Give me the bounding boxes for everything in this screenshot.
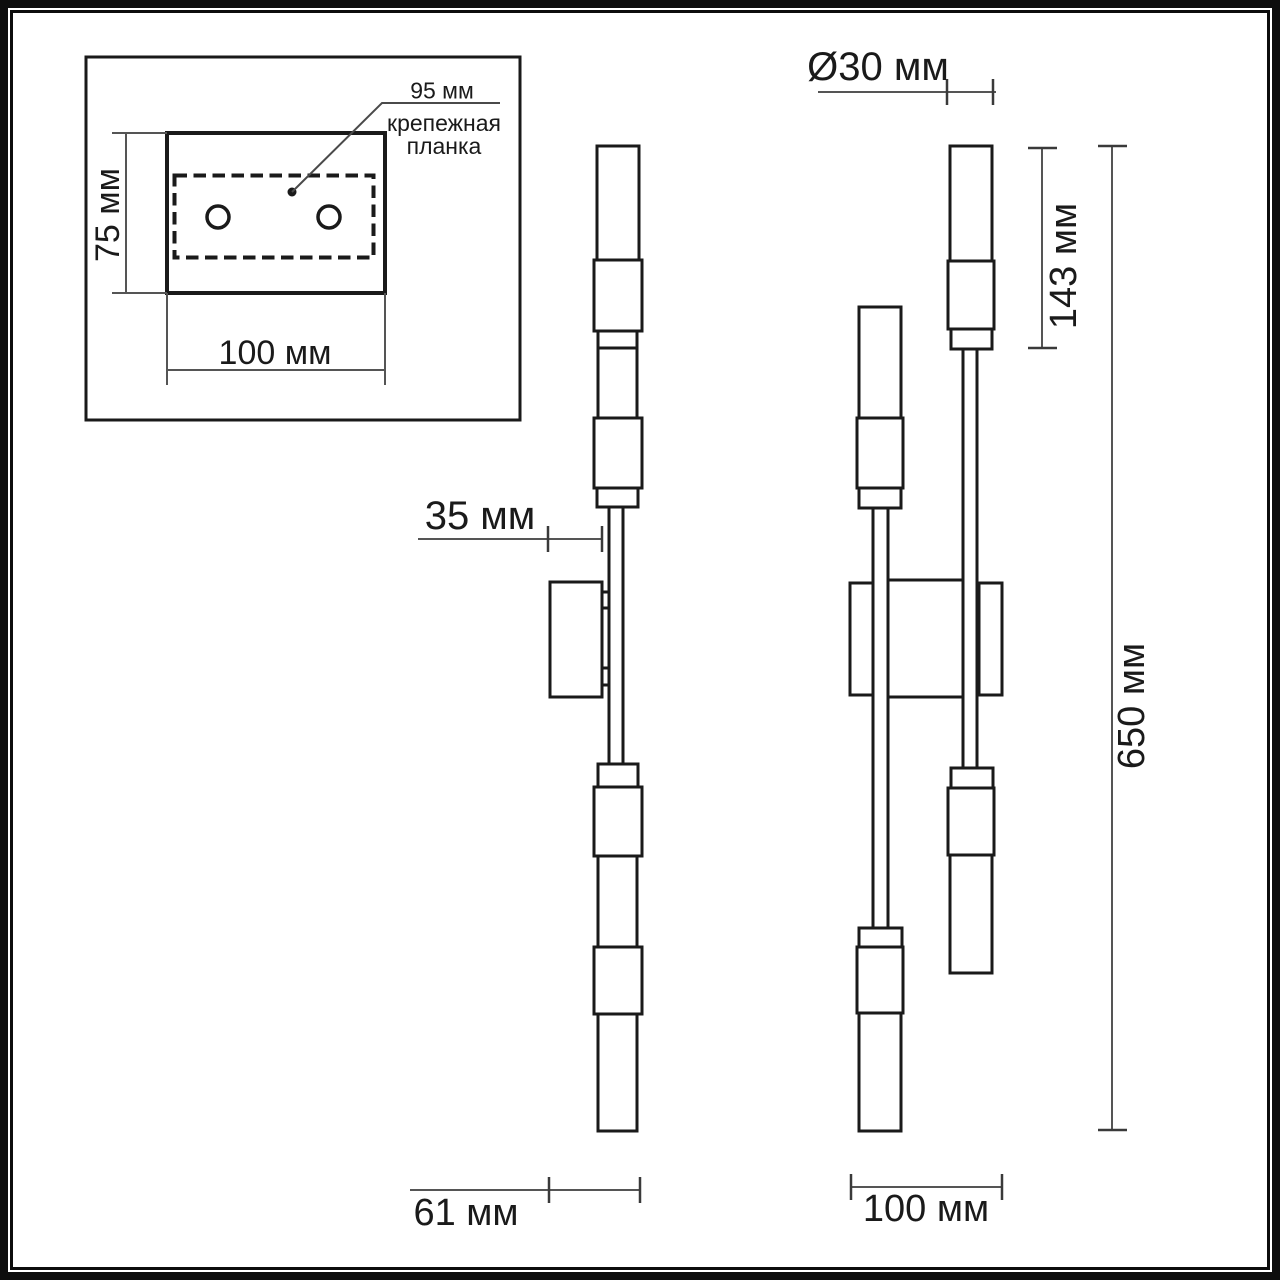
front-left-top-tube [859,307,901,418]
screw-hole-right [318,206,340,228]
side-connector-ring [598,331,637,348]
front-view-group [850,146,1002,1131]
front-right-top-tube [950,146,992,261]
front-right-socket [948,261,994,329]
mounting-plate-note-line2: планка [387,135,501,158]
front-right-lower-tube [950,855,992,973]
overall-height-label: 650 мм [1113,643,1151,769]
front-mount-box [888,580,963,697]
front-left-cap-upper [859,488,901,508]
front-left-socket [857,418,903,488]
screw-hole-left [207,206,229,228]
front-right-cap-lower [951,768,993,788]
drawing-linework [0,0,1280,1280]
front-left-lower-tube [859,1013,901,1131]
front-mount-flange-left [850,583,873,695]
hole-spacing-label: 95 мм [410,80,474,103]
front-right-lower-socket [948,788,994,855]
plate-width-label: 100 мм [219,336,332,370]
side-lower-tube-1 [598,856,637,947]
mounting-plate-note-line1: крепежная [387,112,501,135]
side-stem [609,507,623,766]
front-left-cap-lower [859,928,902,947]
side-wall-box [550,582,602,697]
front-width-label: 100 мм [863,1190,989,1228]
depth-label: 61 мм [413,1194,518,1232]
mounting-plate-outline [167,133,385,293]
side-top-socket [594,260,642,331]
side-stem-cap-upper [597,488,638,507]
front-left-stem [873,508,888,929]
plate-height-label: 75 мм [91,168,125,262]
side-top-tube [597,146,639,260]
front-right-stem [963,349,977,769]
dimension-lines [410,92,1112,1190]
side-lower-socket-2 [594,947,642,1014]
front-mount-flange-right [979,583,1002,695]
wall-offset-label: 35 мм [425,496,536,536]
side-view-group [550,146,642,1131]
side-lower-tube-2 [598,1014,637,1131]
shade-height-label: 143 мм [1045,203,1083,329]
side-lower-socket-1 [594,787,642,856]
side-mid-socket [594,418,642,488]
front-left-lower-socket [857,947,903,1013]
lamp-technical-drawing: 95 мм крепежная планка 75 мм 100 мм 35 м… [0,0,1280,1280]
side-mid-tube [598,348,637,418]
tube-diameter-label: Ø30 мм [807,47,949,87]
side-stem-cap-lower [598,764,638,787]
front-right-cap-upper [951,329,992,349]
mounting-plate-note: крепежная планка [387,112,501,158]
